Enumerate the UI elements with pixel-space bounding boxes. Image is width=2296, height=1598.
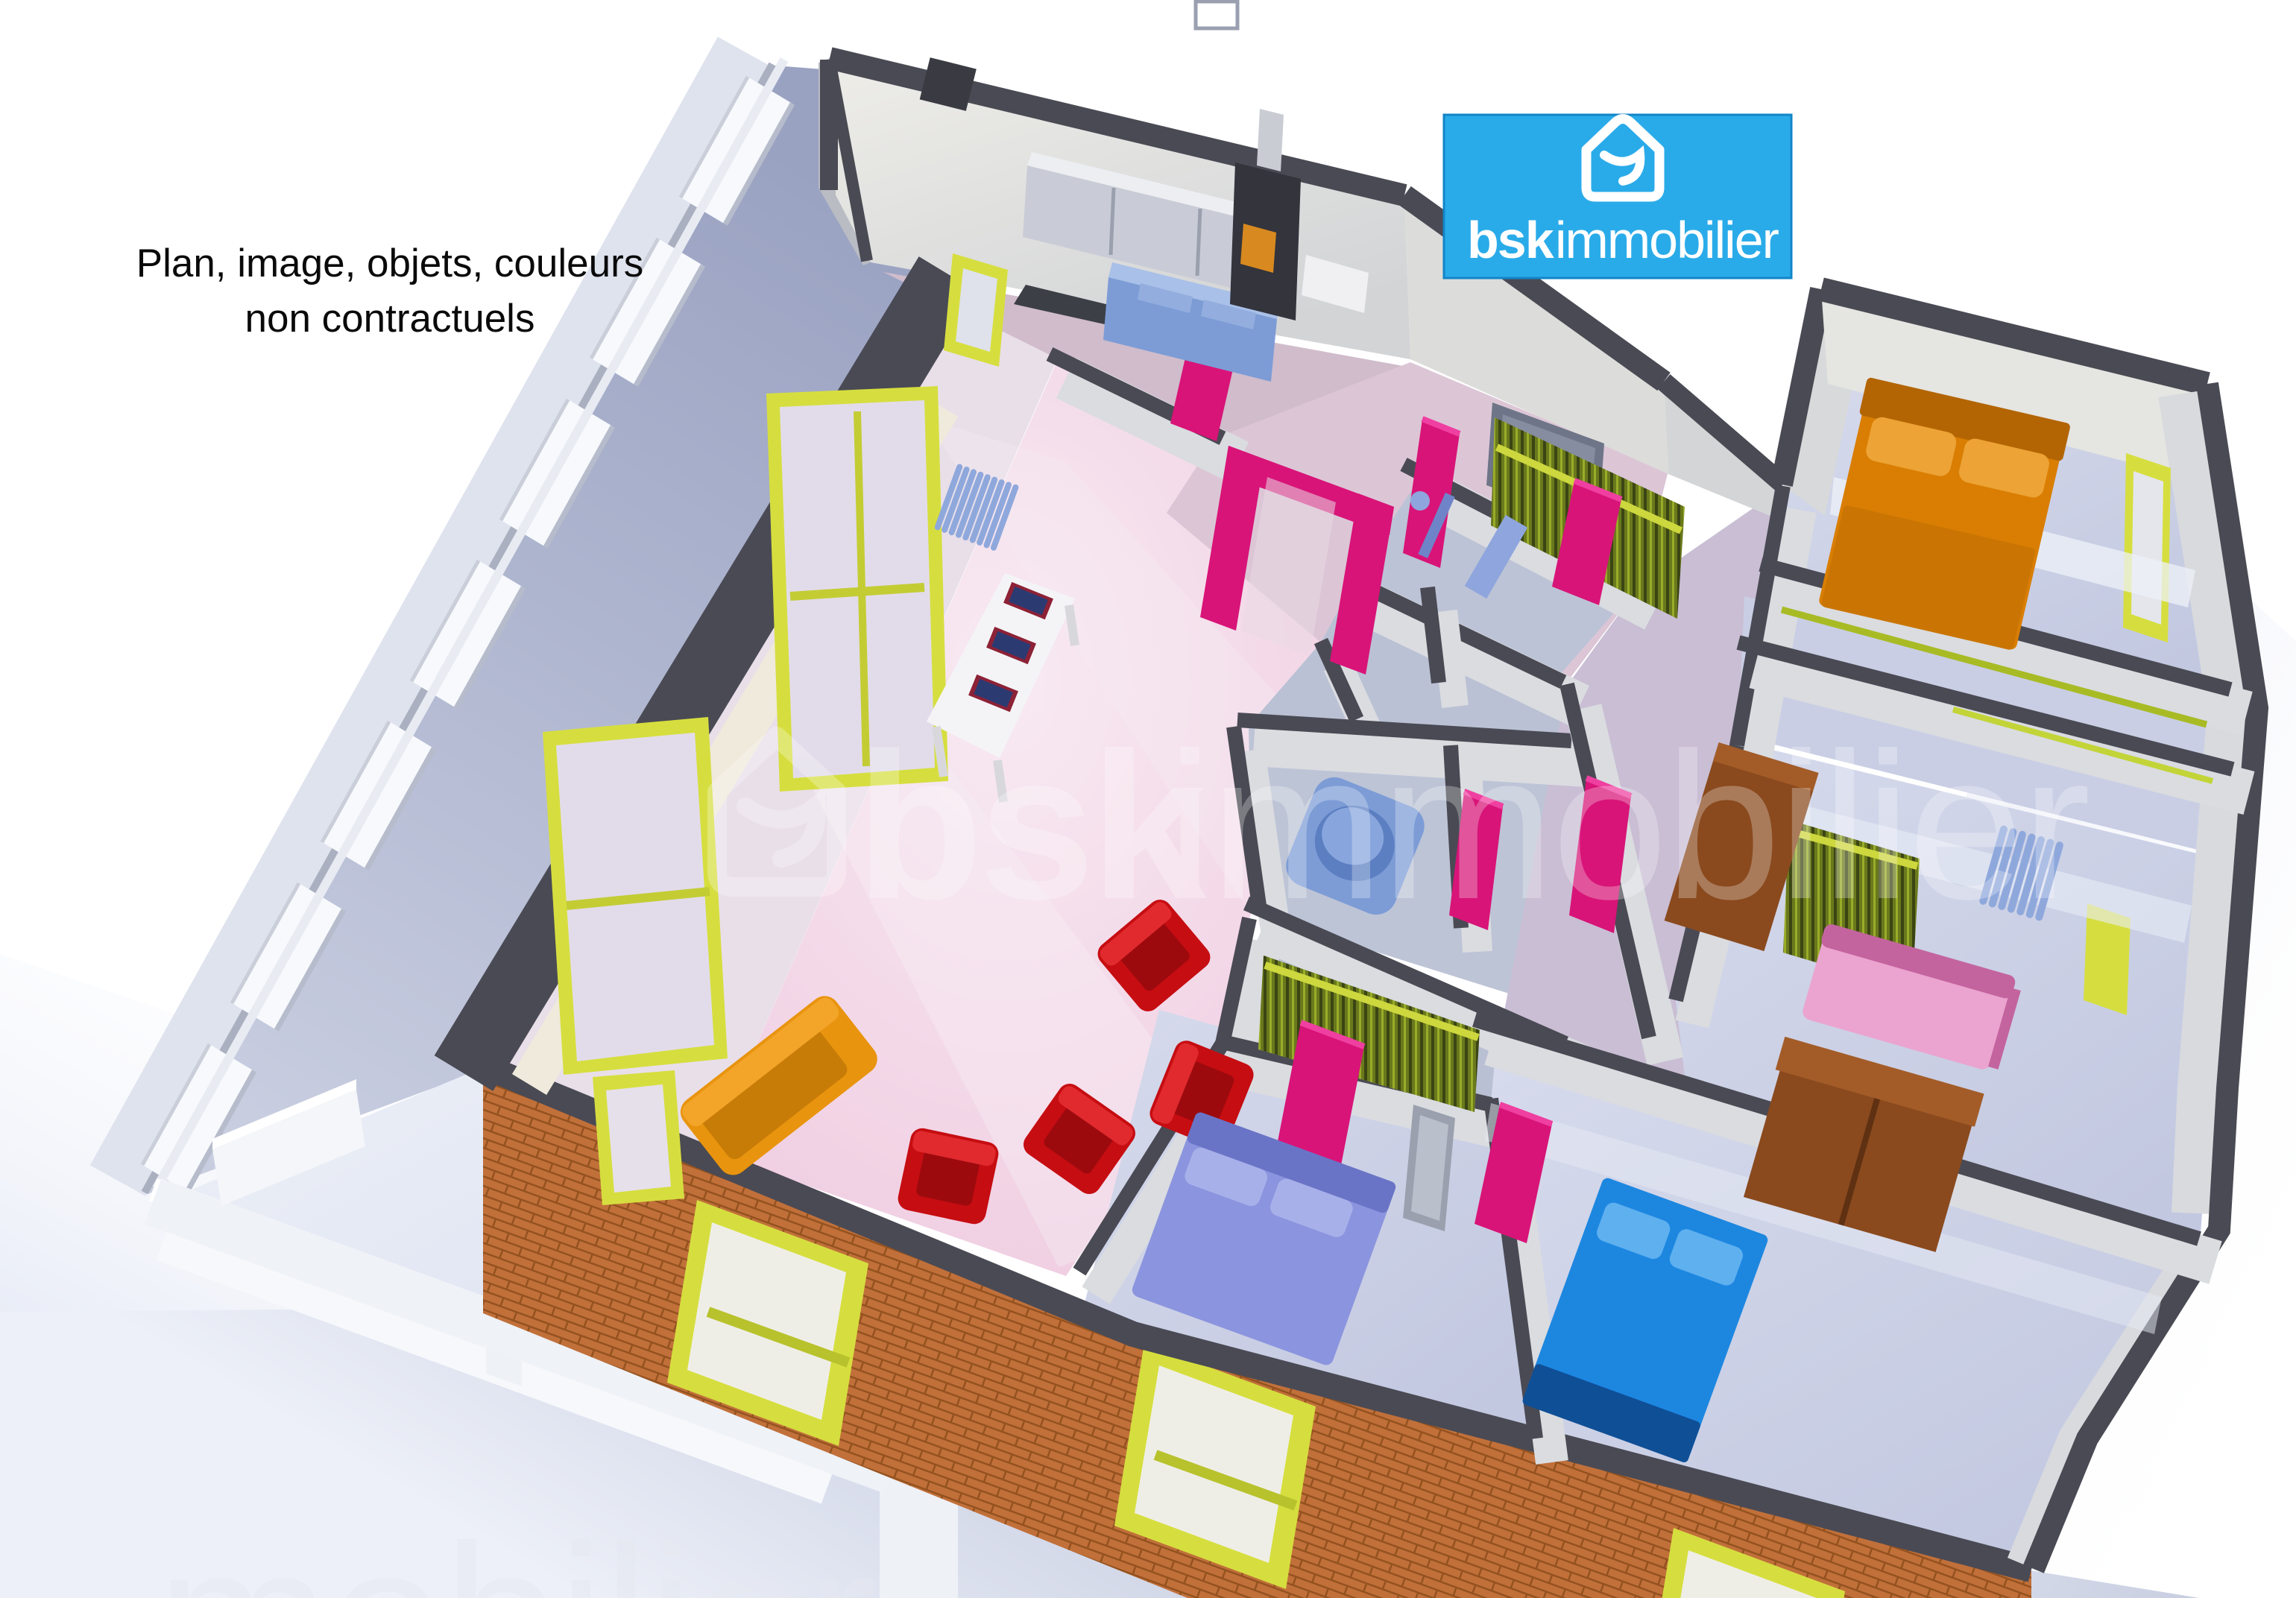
svg-text:immobilier: immobilier bbox=[1555, 211, 1779, 269]
svg-text:Plan, image, objets, couleurs: Plan, image, objets, couleurs bbox=[136, 241, 644, 285]
svg-text:mobilier: mobilier bbox=[157, 1503, 876, 1598]
svg-text:non contractuels: non contractuels bbox=[245, 297, 535, 341]
svg-text:bsk: bsk bbox=[856, 710, 1208, 943]
svg-text:bsk: bsk bbox=[1467, 211, 1554, 269]
svg-text:immobilier: immobilier bbox=[1167, 710, 2090, 943]
